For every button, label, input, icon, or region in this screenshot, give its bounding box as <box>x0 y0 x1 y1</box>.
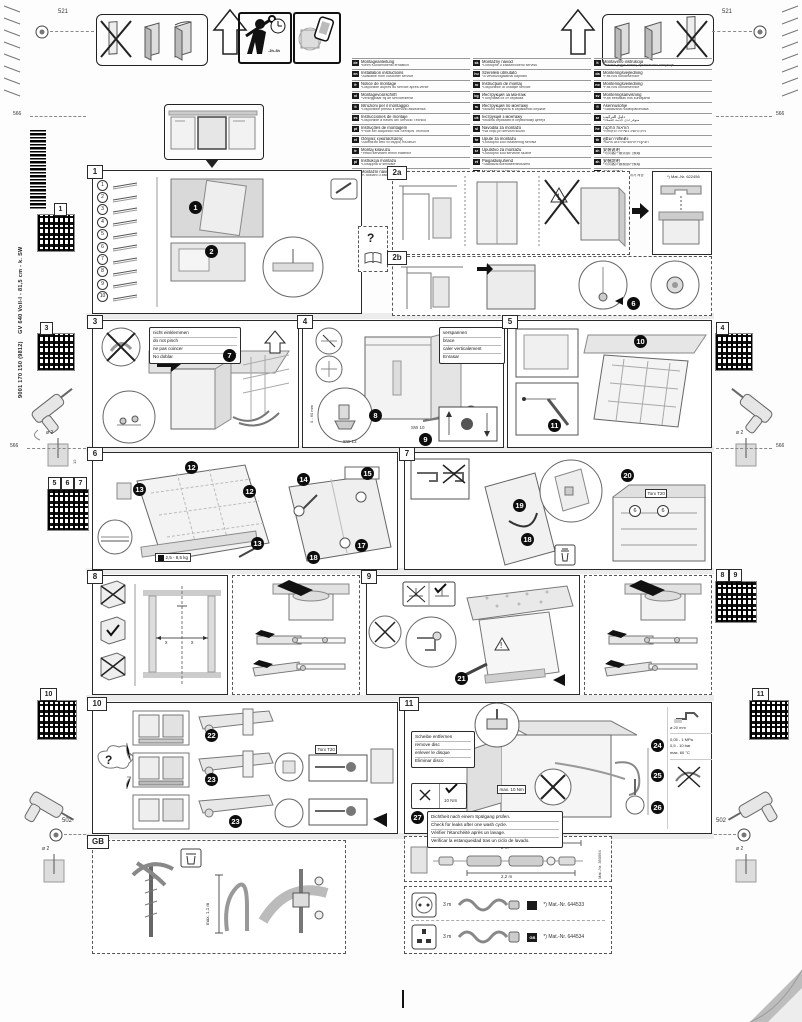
language-code-badge: sk <box>473 60 480 66</box>
note-line: Verificar la estanqueidad tras un ciclo … <box>431 838 559 845</box>
part-icon <box>111 205 141 215</box>
part-icon <box>111 193 141 203</box>
part-icon <box>111 267 141 277</box>
language-note: *Saadaval klienditeenindusest <box>482 163 530 167</box>
drill-depth-label: 12 <box>72 440 77 464</box>
language-note: *Получава се от сервиза <box>482 97 526 101</box>
language-code-badge: da <box>594 71 601 77</box>
note-line: nicht einklemmen <box>153 330 237 338</box>
drill-mark-icon-bottom-left <box>48 827 64 843</box>
rail-adjust-box-right <box>584 575 712 695</box>
language-note: *Disponibile la unităţile service <box>482 86 531 90</box>
part-number-badge: 1 <box>97 180 108 191</box>
step-badge: 12 <box>243 485 256 498</box>
step-badge: 22 <box>205 729 218 742</box>
step-badge: 21 <box>455 672 468 685</box>
cord-row-eu: 3 m *) Mat.-Nr. 644533 <box>411 891 605 919</box>
distance-label: x <box>165 640 168 646</box>
dimension-label-521-left: 521 <box>58 9 68 15</box>
qr-tab-9: 9 <box>729 569 742 582</box>
step-badge: 7 <box>223 349 236 362</box>
hose-lower-length-label: 2,2 m <box>501 874 512 879</box>
faucet-diameter-label: ø 20 mm <box>670 725 712 730</box>
part-number-badge: 4 <box>97 217 108 228</box>
language-note: *Можна отримати в сервісному центрі <box>482 119 545 123</box>
panel-11-label: 11 <box>399 697 419 711</box>
language-row: uk Інструкція з монтажу *Можна отримати … <box>473 113 591 124</box>
note-line: enlever le disque <box>415 750 471 758</box>
panel-10: 10 ? 22 23 23 Torx T20 <box>92 702 398 834</box>
kitchen-cabinets-icon <box>165 105 261 156</box>
cord-length-label: 3 m <box>443 902 451 908</box>
language-code-badge: lt <box>594 60 601 66</box>
step-badge: 25 <box>651 769 664 782</box>
panel-2b-label: 2b <box>387 251 407 265</box>
language-row: fi Asennusohje *Saatavana huoltopalvelus… <box>594 102 712 113</box>
qr-code-steps-8-9 <box>716 582 756 622</box>
arrow-up-icon-right <box>560 8 596 56</box>
drill-diameter-label: ø 2 <box>46 430 53 436</box>
panel-2b: 2b 6 <box>392 256 712 316</box>
note-line: Enrasar <box>443 354 501 361</box>
panel-2a-label: 2a <box>387 166 407 180</box>
language-row: zh 安裝說明 *可向客戶服務部門索取 <box>594 157 712 168</box>
panel-gb-illustration <box>93 841 345 953</box>
leader-line <box>714 834 736 835</box>
rail-adjust-illustration <box>585 576 709 692</box>
parts-list-item: 6 <box>97 241 155 253</box>
leader-line <box>716 116 772 117</box>
torque-ok-label: 10 Nm <box>444 798 457 803</box>
language-note: *Fås hos kundeservice <box>603 75 643 79</box>
language-code-badge: sl <box>473 126 480 132</box>
qr-tab-11: 11 <box>752 688 769 701</box>
power-cord-icon <box>457 927 521 947</box>
step-badge: 6 <box>627 297 640 310</box>
step-badge: 1 <box>189 201 202 214</box>
top-bracket-illustration <box>653 172 709 250</box>
region-badge <box>527 901 537 910</box>
panel-2a: 2a ! <box>392 171 630 255</box>
panel-2b-illustration <box>393 257 709 313</box>
step-badge: 15 <box>361 467 374 480</box>
leader-line <box>716 448 772 449</box>
language-row: en Installation instructions *Available … <box>352 69 470 80</box>
panel-3: 3 nicht einklemmendo not pinchne pas coi… <box>92 320 299 448</box>
step-badge: 18 <box>521 533 534 546</box>
parts-list: 1 2 3 <box>97 179 155 303</box>
language-code-badge: fr <box>352 82 359 88</box>
panel-11: 11 Scheibe entfernenremove discenlever l… <box>404 702 712 834</box>
panel-2a-illustration: ! <box>393 172 627 252</box>
parts-list-item: 10 <box>97 291 155 303</box>
language-row: fr Notice de montage *Disponible auprès … <box>352 80 470 91</box>
panel-4: 4 verspannenbracecaler verticalementEnra… <box>302 320 504 448</box>
language-column-2: sk Montážny návod *Dostupné u zákaznícke… <box>473 58 591 170</box>
step-badge: 19 <box>513 499 526 512</box>
panel-6-illustration <box>93 453 397 569</box>
step-badge: 23 <box>205 773 218 786</box>
language-note: *Kan beställas hos kundtjänst <box>603 97 650 101</box>
language-code-badge: nl <box>352 93 359 99</box>
arrow-right-icon <box>630 202 650 220</box>
part-icon <box>111 279 141 289</box>
ruler-ticks-top-right <box>776 2 800 98</box>
drill-diameter-block-bottom-left: ø 2 <box>40 846 80 898</box>
language-note: *Na voljo pri servisni službi <box>482 130 525 134</box>
rail-adjust-illustration <box>233 576 357 692</box>
ruler-ticks-top-left <box>2 2 26 98</box>
arrow-down-icon <box>203 157 221 169</box>
drill-mark-icon-top-right <box>752 24 768 40</box>
part-icon <box>111 255 141 265</box>
qr-tab-8: 8 <box>716 569 729 582</box>
panel-4-label: 4 <box>297 315 313 329</box>
part-number-badge: 8 <box>97 266 108 277</box>
language-row: lt Montavimo instrukcija *Galima įsigyti… <box>594 58 712 69</box>
qr-code-step-10 <box>38 701 76 739</box>
language-code-badge: hr <box>473 137 480 143</box>
part-number-badge: 10 <box>97 291 108 302</box>
note-line: Vérifier l'étanchéité après un lavage. <box>431 830 559 838</box>
panel-9-label: 9 <box>361 570 377 584</box>
step-badge: 8 <box>369 409 382 422</box>
language-row: sv Monteringsanvisning *Kan beställas ho… <box>594 91 712 102</box>
part-icon <box>111 242 141 252</box>
language-note: *Dostupno kod ovlaštenog servisa <box>482 141 536 145</box>
weight-icon <box>158 555 164 561</box>
power-cord-box: 3 m *) Mat.-Nr. 644533 3 m GB *) Mat.-Nr… <box>404 886 612 954</box>
panel-1: 1 1 2 <box>92 170 362 314</box>
part-number-label: *) Mat.-Nr. 622456 <box>667 174 700 179</box>
parts-list-item: 8 <box>97 266 155 278</box>
note-line: caler verticalement <box>443 346 501 354</box>
language-note: *Yetkili servisten temin edilebilir <box>361 152 411 156</box>
step-badge: 14 <box>297 473 310 486</box>
step-badge: 23 <box>229 815 242 828</box>
language-code-badge: en <box>352 71 359 77</box>
panel-choice-box-left <box>96 14 208 66</box>
language-code-badge: fi <box>594 104 601 110</box>
dimension-label-566-mid-left: 566 <box>10 443 18 449</box>
model-code: GV 640 Voll-I - 81,5 cm - k. SW <box>18 246 24 333</box>
language-row: ar دليل التركيب *متوفر لدى خدمة العملاء <box>594 113 712 124</box>
language-code-badge: hu <box>473 71 480 77</box>
part-number-badge: 7 <box>97 254 108 265</box>
step-badge: 2 <box>205 245 218 258</box>
language-row: he הוראות התקנה *ניתן להשיג בשירות הלקוח… <box>594 124 712 135</box>
language-column-1: de Montageanleitung *Beim Kundendienst e… <box>352 58 470 170</box>
kitchen-run-thumbnail <box>164 104 264 160</box>
panel-6: 6 12 13 12 13 14 15 17 18 2,5 - <box>92 452 398 570</box>
language-code-badge: es <box>352 115 359 121</box>
language-row: el Οδηγίες εγκατάστασης *Διατίθεται από … <box>352 135 470 146</box>
step-badge: 20 <box>621 469 634 482</box>
language-note: *Available from customer service <box>361 75 413 79</box>
part-icon <box>111 230 141 240</box>
language-code-badge: tr <box>352 148 359 154</box>
torque-limit-label: max. 10 Nm <box>497 785 526 794</box>
rail-adjust-box-left <box>232 575 360 695</box>
language-row: tr Montaj kılavuzu *Yetkili servisten te… <box>352 146 470 157</box>
language-code-badge: no <box>594 82 601 88</box>
parts-list-item: 1 <box>97 179 155 191</box>
qr-tab-7: 7 <box>74 477 87 490</box>
wrench-size-label: SW 13 <box>343 439 357 444</box>
part-number-badge: 5 <box>97 229 108 240</box>
language-code-badge: de <box>352 60 359 66</box>
distance-label: x <box>191 640 194 646</box>
language-code-badge: zh <box>594 148 601 154</box>
language-code-badge: ru <box>473 104 480 110</box>
language-code-badge: sv <box>594 93 601 99</box>
panel-7-label: 7 <box>399 447 415 461</box>
cord-part-number: *) Mat.-Nr. 644534 <box>543 934 584 940</box>
panel-10-illustration <box>93 703 397 833</box>
leader-line <box>50 31 94 32</box>
language-note: *Saatavana huoltopalvelusta <box>603 108 649 112</box>
language-row: nl Montagevoorschrift *Verkrijgbaar bij … <box>352 91 470 102</box>
language-row: et Paigaldusjuhend *Saadaval klienditeen… <box>473 157 591 168</box>
leader-line <box>27 448 86 449</box>
barcode <box>30 130 46 210</box>
language-row: de Montageanleitung *Beim Kundendienst e… <box>352 58 470 69</box>
qr-tab-4: 4 <box>716 322 729 335</box>
part-number-badge: 3 <box>97 204 108 215</box>
step-badge: 17 <box>355 539 368 552</box>
step-badge: 12 <box>185 461 198 474</box>
wrench-cross-icon <box>412 784 439 806</box>
door-weight-value: 2,5 - 8,5 kg <box>166 555 189 561</box>
parts-list-item: 2 <box>97 191 155 203</box>
language-note: *Disponible a través del Servicio Técnic… <box>361 119 426 123</box>
leak-check-row: 27 Dichtheit nach einem Spülgang prüfen.… <box>411 811 563 848</box>
note-line: Dichtheit nach einem Spülgang prüfen. <box>431 814 559 822</box>
leader-line <box>64 834 86 835</box>
language-row: ro Instrucţiuni de montaj *Disponibile l… <box>473 80 591 91</box>
language-note: *Pode ser adquirido nos Serviços Técnico… <box>361 130 429 134</box>
torx-tool-label: Torx T20 <box>645 489 667 498</box>
part-ref-badge: 6 <box>657 505 669 517</box>
language-note: *Beim Kundendienst erhältlich <box>361 64 409 68</box>
language-row: hu Szerelési útmutató *A vevőszolgálatná… <box>473 69 591 80</box>
qr-tab-5: 5 <box>48 477 61 490</box>
door-weight-label-box: 2,5 - 8,5 kg <box>155 553 191 562</box>
step-badge: 13 <box>251 537 264 550</box>
install-time-label: -2h-3h <box>268 48 280 53</box>
qr-code-steps-5-6-7 <box>48 490 88 530</box>
dimension-label-502-left: 502 <box>62 818 72 824</box>
brace-note: verspannenbracecaler verticalementEnrasa… <box>439 327 505 364</box>
language-note: *Fås hos kundeservice <box>603 86 643 90</box>
drill-diameter-block-left: ø 2 12 <box>44 430 84 482</box>
crossed-panel-icon-right <box>603 15 711 62</box>
panel-gb: GB max. 1,1 m <box>92 840 346 954</box>
cord-part-number: *) Mat.-Nr. 644533 <box>543 902 584 908</box>
water-spec-column: ø 20 mm 0,05 - 1 MPa0,5 - 10 barmax. 60 … <box>667 707 712 829</box>
step-badge: 11 <box>548 419 561 432</box>
svg-text:!: ! <box>500 641 502 650</box>
language-row: da Monteringsvejledning *Fås hos kundese… <box>594 69 712 80</box>
step-badge: 18 <box>307 551 320 564</box>
part-number-badge: 6 <box>97 242 108 253</box>
height-range-label: 0 - 60 mm <box>309 389 314 423</box>
qr-tab-6: 6 <box>61 477 74 490</box>
panel-8-label: 8 <box>87 570 103 584</box>
step-badge: 10 <box>634 335 647 348</box>
dimension-label-521-right: 521 <box>722 9 732 15</box>
panel-1-label: 1 <box>87 165 103 179</box>
leader-line <box>30 116 86 117</box>
registration-mark <box>402 990 404 1008</box>
power-cord-icon <box>457 895 521 915</box>
note-line: do not pinch <box>153 338 237 346</box>
page-corner-fold <box>750 970 802 1022</box>
qr-code-step-11 <box>750 701 788 739</box>
language-row: sl Navodila za montažo *Na voljo pri ser… <box>473 124 591 135</box>
cord-length-label: 3 m <box>443 934 451 940</box>
faucet-icon <box>670 707 708 725</box>
hand-tighten-legend: 10 Nm <box>411 783 467 809</box>
note-line: verspannen <box>443 330 501 338</box>
panel-7: 7 19 18 20 Torx T20 6 6 <box>404 452 712 570</box>
language-code-badge: th <box>594 137 601 143</box>
torx-tool-label: Torx T20 <box>315 745 337 754</box>
language-code-badge: pt <box>352 126 359 132</box>
qr-tab-1: 1 <box>54 203 67 216</box>
phone-scan-pictogram-box <box>293 12 341 64</box>
language-note: *可向客户服务部门索取 <box>603 152 640 156</box>
part-icon <box>111 180 141 190</box>
leader-line <box>712 31 752 32</box>
no-twist-icon <box>670 763 708 789</box>
panel-5-label: 5 <box>502 315 518 329</box>
language-row: pl Instrukcja montażu *Dostępna w serwis… <box>352 157 470 168</box>
language-code-badge: sr <box>473 148 480 154</box>
panel-3-label: 3 <box>87 315 103 329</box>
parts-list-item: 4 <box>97 216 155 228</box>
manual-book-icon <box>363 251 383 265</box>
drill-diameter-label: ø 2 <box>42 846 49 852</box>
language-row: ru Инструкция по монтажу *Можно получить… <box>473 102 591 113</box>
parts-list-item: 5 <box>97 229 155 241</box>
language-note: *Dostupné u zákazníckeho servisu <box>482 64 537 68</box>
language-code-badge: zh <box>594 159 601 165</box>
language-row: es Instrucciones de montaje *Disponible … <box>352 113 470 124</box>
language-code-badge: et <box>473 159 480 165</box>
installer-pictogram-box: -2h-3h <box>238 12 292 64</box>
uk-socket-icon <box>411 924 437 950</box>
panel-5: 5 10 11 <box>507 320 712 448</box>
drill-depth-icon <box>46 438 70 468</box>
language-row: sr Uputstvo za montažu *Dostupno kod ser… <box>473 146 591 157</box>
parts-list-item: 9 <box>97 278 155 290</box>
drill-diameter-label: ø 2 <box>736 846 743 852</box>
language-note: *Verkrijgbaar bij de servicedienst <box>361 97 413 101</box>
instruction-sheet: 521 -2h-3h <box>0 0 802 1022</box>
language-note: *Galima įsigyti klientų aptarnavimo tarn… <box>603 64 674 68</box>
variant-question-label: ? <box>105 753 112 767</box>
qr-code-step-4 <box>716 334 752 370</box>
language-row: hr Upute za montažu *Dostupno kod ovlašt… <box>473 135 591 146</box>
step-badge: 27 <box>411 811 424 824</box>
dimension-label-502-right: 502 <box>716 818 726 824</box>
qr-code-step-3 <box>38 334 74 370</box>
language-row: it Istruzioni per il montaggio *Disponib… <box>352 102 470 113</box>
schuko-socket-icon <box>411 892 437 918</box>
dimension-label-566-top-right: 566 <box>776 111 784 117</box>
language-column-3: lt Montavimo instrukcija *Galima įsigyti… <box>594 58 712 170</box>
wrench-size-label: SW 10 <box>411 425 425 430</box>
part-number-badge: 2 <box>97 192 108 203</box>
note-line: Check for leaks after one wash cycle. <box>431 822 559 830</box>
drill-mark-icon-bottom-right <box>736 827 752 843</box>
parts-list-item: 7 <box>97 253 155 265</box>
drill-diameter-block-bottom-right: ø 2 <box>722 846 762 898</box>
language-row: sk Montážny návod *Dostupné u zákaznícke… <box>473 58 591 69</box>
language-code-badge: ar <box>594 115 601 121</box>
panel-10-label: 10 <box>87 697 107 711</box>
part-icon <box>111 292 141 302</box>
language-note: *ניתן להשיג בשירות הלקוחות <box>603 130 646 134</box>
language-row: zh 安装说明 *可向客户服务部门索取 <box>594 146 712 157</box>
language-row: bg Инструкция за монтаж *Получава се от … <box>473 91 591 102</box>
drill-diameter-block-right: ø 2 <box>722 430 762 482</box>
qr-tab-10: 10 <box>40 688 57 701</box>
step-badge: 9 <box>419 433 432 446</box>
part-icon <box>111 217 141 227</box>
language-code-badge: el <box>352 137 359 143</box>
language-note: *Disponibile presso il servizio assisten… <box>361 108 426 112</box>
product-code-vertical-text: 9001 170 150 (9812) GV 640 Voll-I - 81,5… <box>18 212 31 398</box>
language-note: *可向客戶服務部門索取 <box>603 163 640 167</box>
language-note: *A vevőszolgálatnál kapható <box>482 75 527 79</box>
phone-scan-icon <box>295 14 335 58</box>
panel-9: 9 ! 21 <box>366 575 580 695</box>
language-list: de Montageanleitung *Beim Kundendienst e… <box>352 58 712 170</box>
qr-code-step-1 <box>38 215 74 251</box>
region-badge: GB <box>527 933 537 942</box>
cord-row-gb: 3 m GB *) Mat.-Nr. 644534 <box>411 923 605 951</box>
panel-9-illustration: ! <box>367 576 579 694</box>
panel-5-illustration <box>508 321 711 447</box>
drill-icon-bottom-right <box>724 782 784 846</box>
dimension-label-566-top-left: 566 <box>13 111 21 117</box>
drill-mark-icon-top-left <box>34 24 50 40</box>
crossed-panel-icon <box>97 15 205 62</box>
note-line: Scheibe entfernen <box>415 734 471 742</box>
language-code-badge: uk <box>473 115 480 121</box>
remove-disc-note: Scheibe entfernenremove discenlever le d… <box>411 731 475 768</box>
qr-tab-3: 3 <box>40 322 53 335</box>
pressure-spec-line: max. 60 °C <box>670 750 712 756</box>
see-manual-box: ? <box>358 226 388 272</box>
language-code-badge: ro <box>473 82 480 88</box>
panel-8-illustration <box>93 576 227 694</box>
language-row: th คู่มือการติดตั้ง *ขอรับได้จากฝ่ายบริก… <box>594 135 712 146</box>
language-code-badge: he <box>594 126 601 132</box>
hose-height-label: max. 1,1 m <box>205 889 210 925</box>
language-note: *Dostupno kod servisne službe <box>482 152 531 156</box>
language-note: *Можно получить в сервисной службе <box>482 108 546 112</box>
parts-list-item: 3 <box>97 204 155 216</box>
language-note: *Διατίθεται από το σέρβις πελατών <box>361 141 416 145</box>
step-badge: 13 <box>133 483 146 496</box>
language-note: *Disponible auprès du service après-vent… <box>361 86 429 90</box>
leak-check-note: Dichtheit nach einem Spülgang prüfen.Che… <box>427 811 563 848</box>
part-ref-badge: 6 <box>629 505 641 517</box>
language-row: pt Instruções de montagem *Pode ser adqu… <box>352 124 470 135</box>
